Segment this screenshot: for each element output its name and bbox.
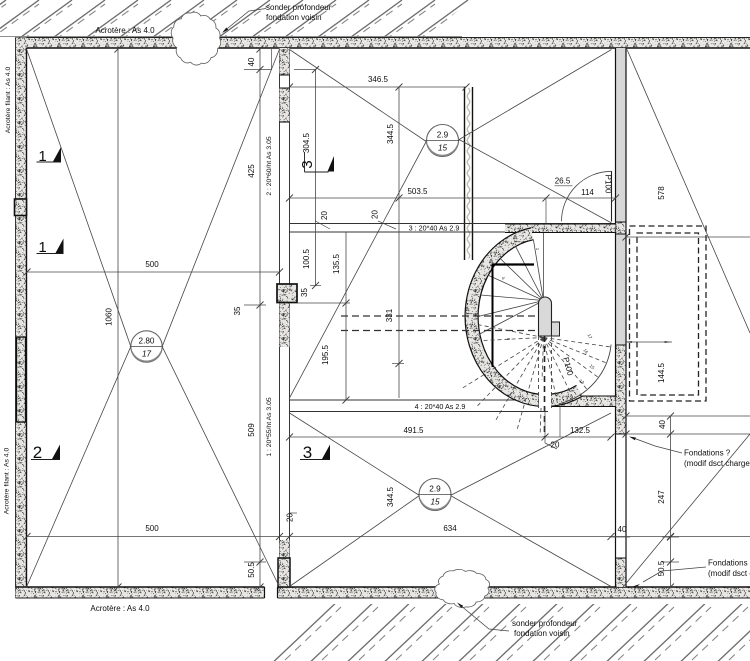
svg-text:144.5: 144.5: [657, 362, 666, 383]
svg-text:20: 20: [551, 441, 560, 450]
svg-text:425: 425: [247, 164, 256, 178]
svg-text:2.9: 2.9: [437, 130, 449, 139]
svg-text:sonder profondeur: sonder profondeur: [266, 3, 332, 12]
svg-text:Acrotère : As 4.0: Acrotère : As 4.0: [95, 26, 155, 35]
svg-text:35: 35: [233, 306, 242, 315]
svg-text:(modif dsct charge): (modif dsct charge): [684, 459, 750, 468]
svg-text:634: 634: [443, 524, 457, 533]
svg-text:40: 40: [247, 57, 256, 66]
svg-text:247: 247: [657, 490, 666, 504]
svg-text:132.5: 132.5: [570, 426, 591, 435]
svg-text:500: 500: [145, 260, 159, 269]
svg-text:26.5: 26.5: [555, 177, 571, 186]
svg-text:40: 40: [658, 420, 667, 429]
svg-text:50.5: 50.5: [657, 560, 666, 576]
svg-text:100.5: 100.5: [302, 248, 311, 269]
svg-text:304.5: 304.5: [302, 132, 311, 153]
svg-text:17: 17: [142, 350, 152, 359]
svg-text:Fondations ?: Fondations ?: [708, 559, 750, 568]
svg-text:135.5: 135.5: [332, 253, 341, 274]
svg-text:491.5: 491.5: [403, 426, 424, 435]
svg-text:P100: P100: [604, 175, 613, 194]
svg-text:fondation voisin: fondation voisin: [266, 13, 322, 22]
svg-text:331: 331: [385, 308, 394, 322]
svg-text:fondation voisin: fondation voisin: [514, 629, 570, 638]
svg-text:578: 578: [657, 186, 666, 200]
svg-text:503.5: 503.5: [407, 187, 428, 196]
svg-text:20: 20: [320, 211, 329, 220]
svg-text:40: 40: [618, 525, 627, 534]
svg-text:3 : 20*40 As 2.9: 3 : 20*40 As 2.9: [409, 224, 460, 233]
svg-text:2.80: 2.80: [139, 336, 155, 345]
svg-text:Acrotère filant : As 4.0: Acrotère filant : As 4.0: [5, 67, 12, 134]
svg-text:50.5: 50.5: [247, 562, 256, 578]
svg-text:1060: 1060: [105, 308, 114, 326]
svg-text:2.9: 2.9: [429, 484, 441, 493]
svg-text:114: 114: [581, 188, 594, 197]
svg-text:2 : 20*60/ht As 3.05: 2 : 20*60/ht As 3.05: [266, 136, 273, 196]
svg-text:500: 500: [145, 524, 159, 533]
svg-text:3: 3: [299, 160, 316, 168]
svg-text:4 : 20*40 As 2.9: 4 : 20*40 As 2.9: [415, 402, 466, 411]
svg-text:(modif dsct e: (modif dsct e: [708, 569, 750, 578]
svg-text:344.5: 344.5: [386, 486, 395, 507]
svg-text:344.5: 344.5: [386, 123, 395, 144]
svg-text:509: 509: [247, 423, 256, 437]
svg-text:sonder profondeur: sonder profondeur: [512, 619, 578, 628]
svg-text:Acrotère filant : As 4.0: Acrotère filant : As 4.0: [4, 448, 11, 515]
svg-text:35: 35: [300, 288, 309, 297]
svg-text:Acrotère : As 4.0: Acrotère : As 4.0: [90, 604, 150, 613]
svg-text:346.5: 346.5: [368, 75, 389, 84]
svg-text:20: 20: [286, 513, 295, 522]
svg-text:20: 20: [371, 210, 380, 219]
svg-text:195.5: 195.5: [321, 344, 330, 365]
svg-text:Fondations ?: Fondations ?: [684, 449, 731, 458]
svg-text:15: 15: [430, 498, 440, 507]
svg-text:1 : 20*55/ht As 3.05: 1 : 20*55/ht As 3.05: [266, 397, 273, 457]
svg-text:15: 15: [438, 144, 448, 153]
